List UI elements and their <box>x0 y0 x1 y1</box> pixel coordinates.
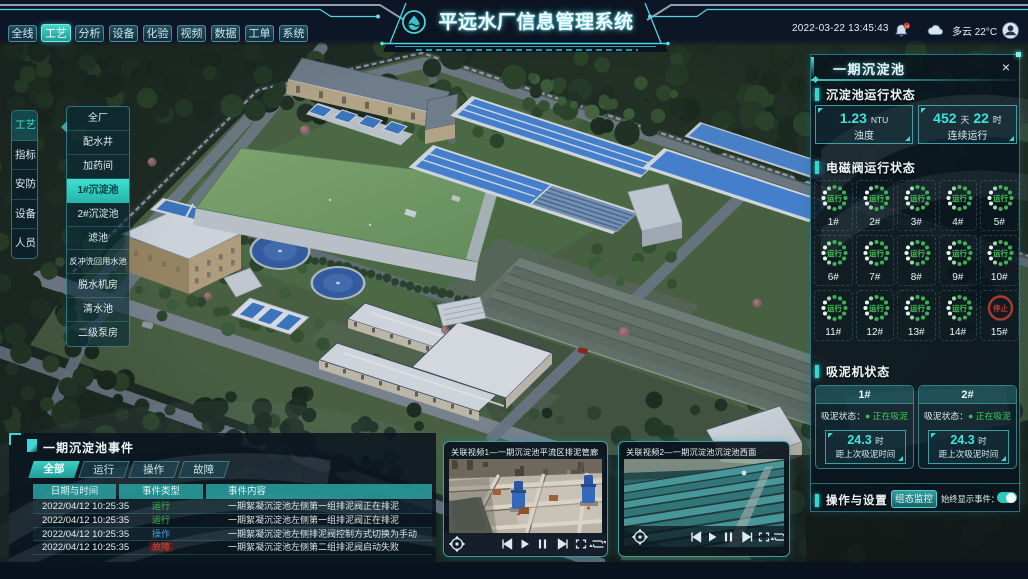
svg-text:运行: 运行 <box>869 303 884 313</box>
svg-text:停止: 停止 <box>993 303 1008 313</box>
svg-text:运行: 运行 <box>993 193 1008 203</box>
svg-text:运行: 运行 <box>952 303 967 313</box>
svg-text:运行: 运行 <box>910 193 925 203</box>
svg-text:运行: 运行 <box>993 248 1008 258</box>
svg-text:运行: 运行 <box>952 193 967 203</box>
svg-text:运行: 运行 <box>827 303 842 313</box>
svg-text:运行: 运行 <box>869 248 884 258</box>
svg-text:运行: 运行 <box>827 248 842 258</box>
svg-text:运行: 运行 <box>869 193 884 203</box>
svg-text:运行: 运行 <box>827 193 842 203</box>
svg-text:运行: 运行 <box>910 248 925 258</box>
svg-text:18: 18 <box>904 24 909 29</box>
svg-text:运行: 运行 <box>910 303 925 313</box>
svg-text:运行: 运行 <box>952 248 967 258</box>
